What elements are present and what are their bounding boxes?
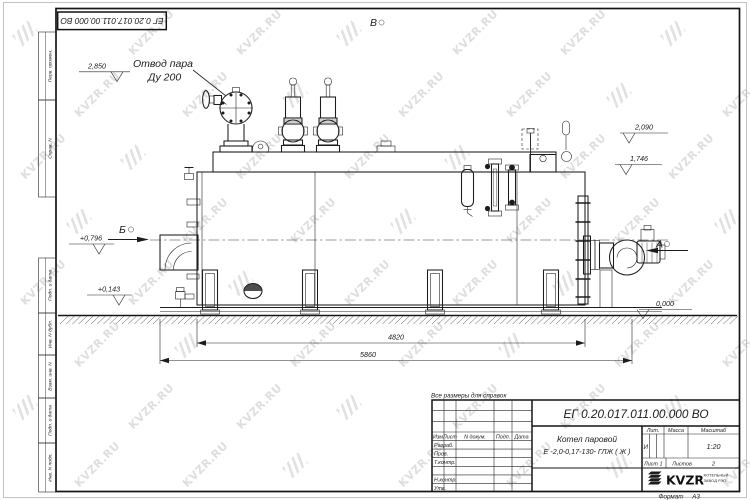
- sig-row-label: Разраб.: [434, 443, 454, 449]
- callout-text: Отвод пара: [133, 58, 193, 70]
- reference-note: Все размеры для справок: [431, 392, 507, 400]
- product-type: Е -2,0-0,17-130- ГЛЖ ( Ж ): [544, 447, 631, 456]
- safety-valve: [314, 78, 343, 152]
- manhole: [244, 284, 262, 299]
- sig-header: Дата: [513, 434, 528, 440]
- top-designation-stamp: ЕГ 0.20.017.011.00.000 ВО: [58, 12, 167, 30]
- boiler-side-view: [58, 78, 738, 324]
- document-designation: ЕГ 0.20.017.011.00.000 ВО: [564, 407, 709, 421]
- sig-header: Лист: [442, 434, 457, 440]
- margin-label: Перв. примен.: [48, 50, 54, 83]
- lifting-hook: [562, 121, 572, 162]
- water-level-gauge: [485, 159, 502, 216]
- base-rails: [160, 308, 662, 312]
- spring-icon: [648, 472, 662, 485]
- elevation-mark: +0,796: [69, 234, 114, 255]
- dimension-4820: 4820: [197, 319, 585, 347]
- logo-subtitle: КОТЕЛЬНЫЙ: [704, 473, 729, 478]
- elevation-value: 1,746: [630, 154, 648, 163]
- water-level-gauge: [506, 165, 519, 210]
- logo-name: KVZR: [666, 473, 704, 488]
- view-label-v: В: [370, 17, 384, 29]
- margin-label: Подп. и дата: [48, 405, 54, 436]
- boiler-drum: [213, 152, 556, 172]
- annotations: Отвод пара Ду 200 2,850 2,090 1,746 +0,7: [69, 17, 692, 364]
- dimension-value: 4820: [388, 333, 404, 342]
- designation-rotated: ЕГ 0.20.017.011.00.000 ВО: [60, 16, 163, 26]
- lit-value: И: [644, 444, 649, 451]
- margin-label: Справ. N: [48, 138, 54, 159]
- elevation-mark: 2,090: [620, 123, 668, 144]
- sample-cooler: [462, 166, 474, 217]
- mass-header: Масса: [668, 428, 684, 434]
- view-label-b: Б: [108, 224, 149, 242]
- sheet-value: 1: [660, 462, 663, 468]
- sig-row-label: Пров.: [434, 452, 448, 458]
- steam-outlet-callout: Отвод пара Ду 200: [133, 58, 226, 96]
- sheets-value: 2: [711, 462, 715, 468]
- elevation-mark: 1,746: [615, 154, 662, 175]
- elevation-value: 0,000: [656, 299, 674, 308]
- front-fittings: [176, 168, 201, 308]
- format-label: Формат: [658, 494, 683, 500]
- steam-outlet-valve: [203, 88, 253, 153]
- sig-row-label: Т.контр.: [434, 460, 456, 466]
- scale-value: 1:20: [707, 442, 721, 451]
- elevation-mark: +0,143: [87, 285, 132, 306]
- callout-text: Ду 200: [147, 72, 181, 84]
- sig-row-label: Утв.: [433, 486, 446, 492]
- elevation-mark: 2,850: [79, 62, 130, 82]
- margin-label: Инв. N подл.: [48, 453, 54, 482]
- elevation-value: +0,143: [98, 285, 120, 294]
- dimension-value: 5860: [360, 350, 376, 359]
- dimension-5860: 5860: [160, 319, 632, 364]
- margin-stamps: Перв. примен. Справ. N Подп. и дата Инв.…: [39, 32, 57, 492]
- format-value: А3: [691, 494, 700, 500]
- title-block: Все размеры для справок: [431, 392, 740, 500]
- elevation-value: 2,850: [87, 62, 106, 71]
- boiler-general-view-drawing: Перв. примен. Справ. N Подп. и дата Инв.…: [0, 0, 750, 500]
- drum-flange: [377, 141, 395, 152]
- view-letter: Б: [119, 224, 126, 236]
- sheet-frame: Перв. примен. Справ. N Подп. и дата Инв.…: [4, 3, 747, 498]
- margin-label: Подп. и дата: [48, 270, 54, 301]
- sig-row-label: Н.контр.: [434, 477, 457, 483]
- sig-header: N докум.: [464, 434, 486, 440]
- safety-valve: [279, 78, 308, 152]
- rear-burner-assembly: [584, 226, 666, 308]
- lit-header: Лит.: [646, 428, 660, 434]
- scale-header: Масштаб: [701, 428, 727, 434]
- product-name: Котел паровой: [557, 434, 617, 444]
- margin-label: Взам. инв. N: [48, 362, 54, 391]
- sheet-label: Лист: [643, 462, 658, 468]
- elevation-value: +0,796: [80, 234, 102, 243]
- logo-subtitle: ЗАВОД РЭП: [704, 478, 727, 483]
- sig-header: Изм: [433, 434, 443, 440]
- drum-bracket: [253, 141, 269, 152]
- drawing-sheet: KVZR.RUKVZR.RUKVZR.RUKVZR.RUKVZR.RUKVZR.…: [0, 0, 750, 500]
- margin-label: Инв. N дубл.: [48, 320, 54, 348]
- sheets-label: Листов: [671, 462, 692, 468]
- view-letter: В: [370, 17, 377, 29]
- sig-header: Подп.: [496, 434, 510, 440]
- elevation-value: 2,090: [634, 123, 653, 132]
- company-logo: KVZR КОТЕЛЬНЫЙ ЗАВОД РЭП: [648, 472, 729, 488]
